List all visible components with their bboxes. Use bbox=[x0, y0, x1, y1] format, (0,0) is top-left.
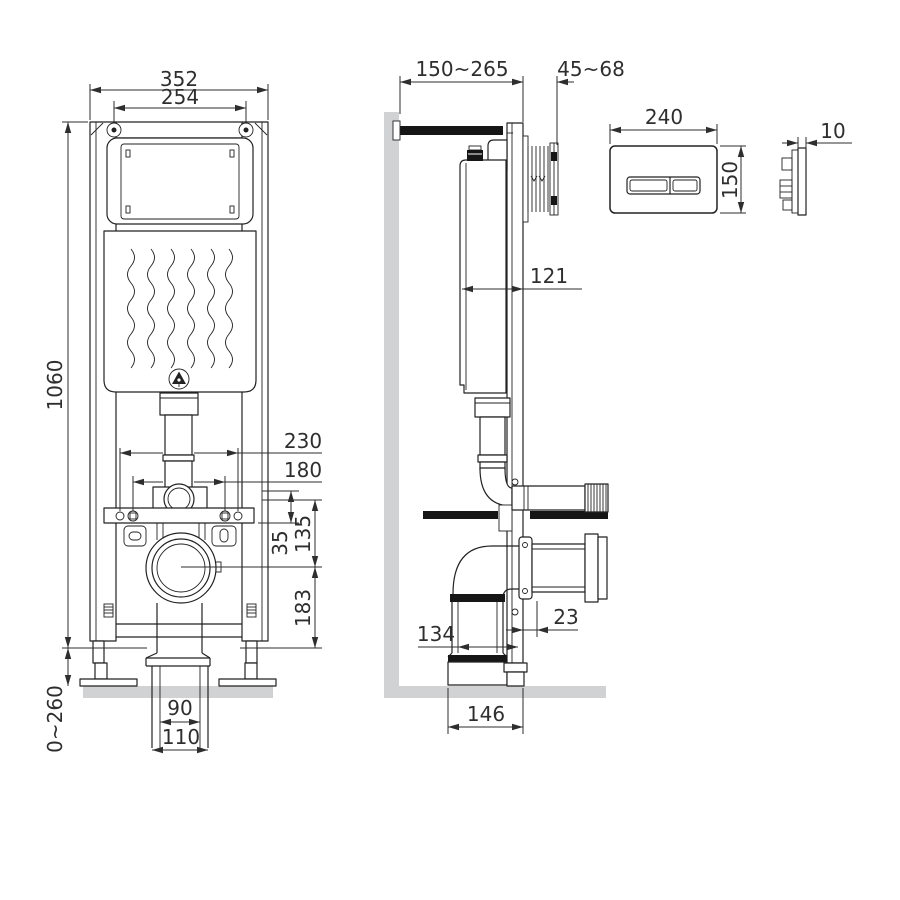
wall-side bbox=[384, 112, 399, 698]
dim-drain-offset-label: 134 bbox=[417, 622, 455, 646]
wall-support-rod bbox=[399, 126, 503, 135]
mounting-rail bbox=[104, 508, 254, 523]
flush-plate-front-view bbox=[610, 146, 717, 213]
dim-cistern-depth-label: 121 bbox=[530, 264, 568, 288]
rod-wall-anchor bbox=[393, 121, 400, 140]
waste-outlet-port bbox=[146, 533, 221, 603]
plate-side-clips bbox=[780, 158, 792, 210]
flush-plate-side-view bbox=[780, 148, 806, 215]
dim-plate-thickness: 10 bbox=[782, 119, 852, 149]
dim-inlet-to-outlet-label: 135 bbox=[291, 515, 315, 553]
dim-hole-spacing-outer-label: 230 bbox=[284, 429, 322, 453]
dim-depth-range-label: 150~265 bbox=[415, 57, 508, 81]
dim-shaft-range: 45~68 bbox=[506, 57, 625, 145]
dim-leg-adjust: 0~260 bbox=[43, 648, 68, 753]
dim-rail-offset-label: 35 bbox=[268, 530, 292, 555]
brand-logo-icon bbox=[169, 369, 189, 389]
dim-screw-spacing: 254 bbox=[114, 85, 246, 122]
bowl-inlet-stub bbox=[499, 505, 512, 531]
dim-leg-adjust-label: 0~260 bbox=[43, 685, 67, 753]
bowl-flush-connector bbox=[512, 484, 608, 512]
top-crossbar bbox=[116, 122, 242, 138]
side-foot bbox=[504, 663, 527, 686]
dim-depth-range: 150~265 bbox=[400, 57, 523, 122]
rail-bar-side-left bbox=[423, 511, 498, 519]
dim-plate-height-label: 150 bbox=[718, 161, 742, 199]
flush-pipe-front bbox=[160, 393, 198, 495]
dim-screw-spacing-label: 254 bbox=[161, 85, 199, 109]
dim-frame-height-label: 1060 bbox=[43, 360, 67, 411]
fill-valve-cap bbox=[467, 150, 483, 161]
dim-base-depth-label: 146 bbox=[467, 702, 505, 726]
front-view bbox=[80, 122, 276, 748]
plate-shaft-bellows bbox=[523, 136, 558, 222]
cistern-side bbox=[460, 140, 507, 393]
dim-leg-offset-label: 23 bbox=[553, 605, 578, 629]
waste-connector-side bbox=[519, 534, 607, 602]
dim-plate-width: 240 bbox=[610, 105, 717, 144]
dim-plate-height: 150 bbox=[718, 146, 746, 213]
access-window-inner bbox=[121, 144, 239, 219]
dim-shaft-range-label: 45~68 bbox=[557, 57, 625, 81]
flush-plate-body bbox=[610, 146, 717, 213]
installation-frame-drawing: 352 254 1060 0~260 230 bbox=[0, 0, 900, 900]
cistern-front-panel bbox=[104, 231, 256, 392]
dim-plate-thickness-label: 10 bbox=[820, 119, 845, 143]
plate-side-panel bbox=[798, 148, 806, 215]
dim-drain-outer-label: 110 bbox=[162, 725, 200, 749]
dim-plate-width-label: 240 bbox=[645, 105, 683, 129]
dim-drain-inner-label: 90 bbox=[167, 696, 192, 720]
dim-drain-inner: 90 bbox=[160, 696, 200, 722]
technical-drawing-page: 352 254 1060 0~260 230 bbox=[0, 0, 900, 900]
floor-side bbox=[384, 686, 606, 698]
dim-outlet-height-label: 183 bbox=[291, 589, 315, 627]
dim-hole-spacing-inner-label: 180 bbox=[284, 458, 322, 482]
